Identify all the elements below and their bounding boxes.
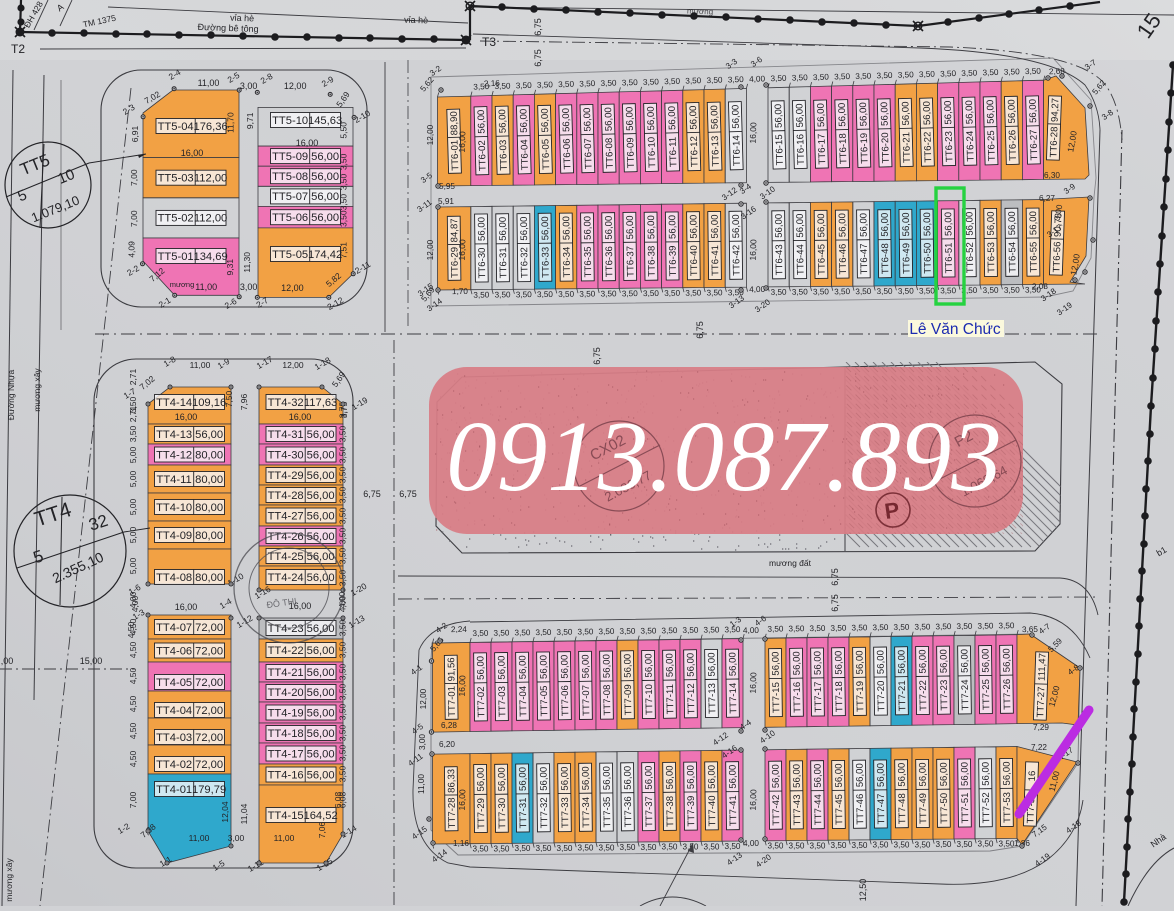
- svg-text:3,50: 3,50: [789, 842, 805, 851]
- svg-text:TT6-16: TT6-16: [795, 134, 807, 165]
- svg-text:56,00: 56,00: [622, 654, 633, 678]
- svg-text:6,91: 6,91: [130, 125, 140, 142]
- svg-text:56,00: 56,00: [816, 103, 828, 127]
- svg-text:56,00: 56,00: [311, 191, 339, 203]
- svg-text:3,50: 3,50: [707, 288, 724, 297]
- svg-text:TT7-45: TT7-45: [834, 794, 845, 825]
- svg-text:TT6-53: TT6-53: [986, 242, 997, 273]
- svg-text:TT5-07: TT5-07: [272, 191, 308, 203]
- svg-text:TT4-14: TT4-14: [156, 397, 192, 409]
- svg-text:TT4-27: TT4-27: [268, 510, 304, 522]
- svg-text:,00: ,00: [1, 656, 14, 666]
- svg-text:3,50: 3,50: [338, 466, 348, 483]
- svg-text:56,00: 56,00: [981, 762, 992, 786]
- svg-text:11,00: 11,00: [189, 833, 210, 843]
- svg-text:56,00: 56,00: [644, 766, 655, 790]
- svg-text:TT6-13: TT6-13: [710, 136, 722, 167]
- svg-text:TT7-12: TT7-12: [686, 683, 697, 714]
- svg-text:56,00: 56,00: [623, 766, 634, 790]
- svg-text:3,50: 3,50: [685, 76, 702, 86]
- svg-text:3,50: 3,50: [535, 628, 552, 637]
- svg-text:3,50: 3,50: [495, 290, 512, 299]
- svg-text:16,00: 16,00: [457, 789, 468, 811]
- svg-text:TT7-30: TT7-30: [497, 798, 508, 829]
- svg-text:56,00: 56,00: [604, 216, 615, 240]
- svg-text:3,50: 3,50: [767, 624, 784, 633]
- svg-text:TT7-44: TT7-44: [813, 794, 824, 826]
- svg-text:56,00: 56,00: [518, 767, 529, 791]
- svg-text:5,00: 5,00: [128, 446, 138, 463]
- svg-text:TT6-35: TT6-35: [583, 246, 594, 277]
- svg-text:TT7-29: TT7-29: [476, 798, 487, 829]
- svg-text:112,00: 112,00: [194, 213, 227, 225]
- svg-text:TT4-09: TT4-09: [156, 530, 192, 542]
- svg-text:7,50: 7,50: [224, 390, 234, 407]
- svg-text:56,00: 56,00: [307, 490, 335, 502]
- svg-text:TT6-27: TT6-27: [1028, 129, 1040, 160]
- svg-text:TT6-36: TT6-36: [604, 246, 615, 277]
- svg-text:TT7-22: TT7-22: [918, 680, 929, 711]
- svg-text:56,00: 56,00: [901, 212, 912, 236]
- svg-text:TT7-37: TT7-37: [644, 796, 655, 827]
- svg-text:3,50: 3,50: [598, 627, 615, 636]
- svg-text:56,00: 56,00: [834, 763, 845, 787]
- svg-text:3,50: 3,50: [622, 289, 639, 298]
- svg-text:TT4-29: TT4-29: [268, 470, 304, 482]
- svg-text:3,50: 3,50: [640, 626, 657, 635]
- svg-text:56,00: 56,00: [195, 429, 223, 441]
- svg-text:TT4-11: TT4-11: [156, 474, 191, 486]
- svg-text:56,00: 56,00: [837, 103, 849, 127]
- svg-text:56,00: 56,00: [774, 214, 785, 238]
- svg-text:16,00: 16,00: [175, 412, 198, 422]
- svg-text:56,00: 56,00: [922, 101, 934, 125]
- svg-text:56,00: 56,00: [307, 572, 335, 584]
- svg-text:4,50: 4,50: [128, 722, 138, 739]
- svg-text:11,30: 11,30: [242, 252, 252, 273]
- svg-text:3,50: 3,50: [515, 844, 531, 853]
- svg-text:TT6-08: TT6-08: [604, 138, 616, 169]
- svg-text:91,56: 91,56: [446, 657, 457, 681]
- svg-text:56,00: 56,00: [476, 767, 487, 791]
- svg-text:3,50: 3,50: [813, 73, 830, 83]
- svg-text:3,50: 3,50: [998, 621, 1015, 630]
- svg-text:3,50: 3,50: [338, 507, 348, 524]
- svg-text:56,00: 56,00: [688, 215, 699, 239]
- svg-text:TT7-39: TT7-39: [686, 796, 697, 827]
- svg-text:72,00: 72,00: [195, 622, 223, 634]
- svg-text:56,00: 56,00: [812, 651, 823, 675]
- svg-text:TT4-25: TT4-25: [268, 551, 304, 563]
- svg-text:3,50: 3,50: [792, 287, 809, 296]
- svg-text:TT6-25: TT6-25: [986, 130, 998, 161]
- svg-text:72,00: 72,00: [195, 759, 223, 771]
- svg-text:56,00: 56,00: [896, 650, 907, 674]
- svg-text:3,50: 3,50: [809, 624, 826, 633]
- svg-text:TT4-06: TT4-06: [156, 645, 192, 657]
- svg-text:3,00: 3,00: [418, 734, 427, 750]
- svg-text:3,50: 3,50: [771, 288, 788, 297]
- svg-text:TT5-01: TT5-01: [158, 251, 194, 263]
- svg-text:56,00: 56,00: [917, 649, 928, 673]
- svg-text:56,00: 56,00: [538, 655, 549, 679]
- svg-text:3,50: 3,50: [919, 70, 936, 80]
- svg-text:7,00: 7,00: [129, 169, 139, 186]
- svg-text:3,50: 3,50: [977, 621, 994, 630]
- svg-text:12,00: 12,00: [426, 124, 435, 145]
- svg-text:TT4-04: TT4-04: [156, 705, 192, 717]
- svg-text:56,00: 56,00: [943, 212, 954, 236]
- svg-text:3,50: 3,50: [643, 77, 660, 87]
- svg-text:TT7-27: TT7-27: [1035, 686, 1047, 717]
- svg-text:56,00: 56,00: [795, 214, 806, 238]
- svg-text:5,50: 5,50: [338, 122, 348, 139]
- svg-text:7,00: 7,00: [129, 210, 139, 227]
- svg-text:TT4-30: TT4-30: [268, 449, 304, 461]
- svg-text:3,50: 3,50: [557, 844, 573, 853]
- svg-text:1,70: 1,70: [452, 287, 469, 296]
- svg-text:3,50: 3,50: [516, 290, 533, 299]
- svg-text:TT4-07: TT4-07: [156, 622, 192, 634]
- svg-text:TT6-56: TT6-56: [1051, 241, 1063, 272]
- svg-text:3,50: 3,50: [851, 623, 868, 632]
- svg-text:86,33: 86,33: [446, 769, 457, 793]
- svg-text:56,00: 56,00: [517, 655, 528, 679]
- svg-text:TT7-41: TT7-41: [728, 795, 739, 826]
- svg-text:mương xây: mương xây: [4, 858, 14, 902]
- svg-text:56,00: 56,00: [730, 105, 742, 129]
- svg-text:56,00: 56,00: [582, 216, 593, 240]
- svg-text:12,50: 12,50: [858, 879, 868, 902]
- svg-text:56,00: 56,00: [646, 215, 657, 239]
- svg-text:TT5-03: TT5-03: [158, 173, 194, 185]
- svg-text:3,50: 3,50: [338, 641, 348, 658]
- svg-text:56,00: 56,00: [854, 650, 865, 674]
- svg-text:16,00: 16,00: [457, 131, 468, 153]
- svg-text:56,00: 56,00: [938, 649, 949, 673]
- svg-text:3,50: 3,50: [338, 486, 348, 503]
- svg-text:56,00: 56,00: [837, 213, 848, 237]
- svg-text:3,50: 3,50: [599, 843, 615, 852]
- svg-text:TT6-03: TT6-03: [498, 140, 510, 171]
- svg-text:3,50: 3,50: [834, 287, 851, 296]
- svg-text:3,50: 3,50: [894, 841, 910, 850]
- svg-text:4,00: 4,00: [749, 285, 766, 294]
- svg-text:3,50: 3,50: [957, 840, 973, 849]
- svg-text:3,50: 3,50: [641, 843, 657, 852]
- svg-text:56,00: 56,00: [519, 217, 530, 241]
- svg-text:3,50: 3,50: [338, 683, 348, 700]
- svg-text:3,50: 3,50: [600, 78, 617, 88]
- svg-text:56,00: 56,00: [728, 765, 739, 789]
- svg-text:16,00: 16,00: [289, 412, 312, 422]
- svg-text:12,00: 12,00: [281, 283, 304, 293]
- svg-text:3,50: 3,50: [813, 287, 830, 296]
- svg-text:vỉa hè: vỉa hè: [404, 15, 428, 26]
- svg-text:TT7-23: TT7-23: [939, 680, 950, 711]
- svg-text:56,00: 56,00: [709, 105, 721, 129]
- svg-text:3,50: 3,50: [620, 843, 636, 852]
- svg-text:56,00: 56,00: [307, 510, 335, 522]
- svg-text:56,00: 56,00: [307, 707, 335, 719]
- svg-text:56,00: 56,00: [707, 765, 718, 789]
- svg-text:TT6-48: TT6-48: [880, 243, 891, 274]
- svg-text:56,00: 56,00: [1001, 648, 1012, 672]
- svg-text:TT5-09: TT5-09: [272, 151, 308, 163]
- svg-text:12,00: 12,00: [426, 239, 435, 260]
- svg-text:16,00: 16,00: [748, 789, 759, 811]
- svg-text:16,00: 16,00: [748, 122, 759, 144]
- svg-text:TT4-28: TT4-28: [268, 490, 304, 502]
- svg-text:56,00: 56,00: [561, 108, 573, 132]
- svg-text:3,50: 3,50: [643, 289, 660, 298]
- svg-text:2,08: 2,08: [1032, 282, 1049, 291]
- svg-text:3,50: 3,50: [768, 842, 784, 851]
- svg-text:3,50: 3,50: [338, 703, 348, 720]
- svg-text:4,50: 4,50: [126, 621, 136, 638]
- svg-text:3,50: 3,50: [661, 626, 678, 635]
- svg-text:3,50: 3,50: [494, 81, 511, 91]
- svg-text:3,50: 3,50: [855, 71, 872, 81]
- svg-text:TT4-17: TT4-17: [268, 748, 304, 760]
- svg-text:TT5-10: TT5-10: [272, 115, 308, 127]
- svg-text:6,75: 6,75: [363, 489, 381, 499]
- svg-text:6,75: 6,75: [533, 18, 543, 36]
- svg-text:56,00: 56,00: [624, 107, 636, 131]
- svg-text:3,50: 3,50: [682, 626, 699, 635]
- svg-text:3,50: 3,50: [473, 290, 490, 299]
- svg-text:vỉa hè: vỉa hè: [230, 13, 254, 24]
- svg-text:TT6-14: TT6-14: [731, 134, 743, 166]
- svg-text:3,50: 3,50: [128, 425, 138, 442]
- svg-text:6,75: 6,75: [533, 49, 543, 67]
- svg-text:3,50: 3,50: [1004, 67, 1021, 77]
- svg-text:56,00: 56,00: [1006, 99, 1018, 123]
- svg-text:4,00: 4,00: [743, 839, 759, 848]
- svg-text:TT7-51: TT7-51: [960, 792, 971, 823]
- svg-text:56,00: 56,00: [625, 215, 636, 239]
- svg-text:3,50: 3,50: [855, 287, 872, 296]
- svg-text:3,50: 3,50: [338, 173, 348, 190]
- svg-text:3,50: 3,50: [619, 627, 636, 636]
- svg-text:6,20: 6,20: [439, 740, 455, 749]
- svg-text:TT6-52: TT6-52: [965, 242, 976, 273]
- svg-text:5,95: 5,95: [439, 182, 455, 191]
- svg-text:7,22: 7,22: [1031, 743, 1047, 752]
- svg-text:3,50: 3,50: [770, 74, 787, 84]
- svg-text:3,50: 3,50: [556, 628, 573, 637]
- svg-text:3,50: 3,50: [852, 841, 868, 850]
- svg-text:TT7-25: TT7-25: [981, 679, 992, 710]
- svg-text:56,00: 56,00: [685, 653, 696, 677]
- svg-text:179,79: 179,79: [192, 784, 226, 796]
- svg-text:5,00: 5,00: [128, 526, 138, 543]
- svg-text:3,50: 3,50: [982, 68, 999, 78]
- svg-text:TT4-05: TT4-05: [156, 677, 192, 689]
- svg-text:3,50: 3,50: [514, 628, 531, 637]
- svg-text:56,00: 56,00: [897, 763, 908, 787]
- svg-text:TT6-11: TT6-11: [668, 137, 680, 168]
- svg-text:TT4-24: TT4-24: [268, 572, 304, 584]
- svg-text:TT6-07: TT6-07: [583, 138, 595, 169]
- svg-text:11,70: 11,70: [226, 112, 236, 133]
- svg-text:56,00: 56,00: [875, 650, 886, 674]
- svg-text:Đường bê tông: Đường bê tông: [197, 22, 258, 34]
- svg-text:TT7-47: TT7-47: [876, 793, 887, 824]
- svg-text:56,00: 56,00: [307, 748, 335, 760]
- svg-text:TT6-22: TT6-22: [922, 131, 934, 162]
- svg-text:56,00: 56,00: [791, 651, 802, 675]
- svg-text:56,00: 56,00: [307, 449, 335, 461]
- svg-text:56,00: 56,00: [497, 767, 508, 791]
- svg-text:56,00: 56,00: [773, 104, 785, 128]
- svg-text:56,00: 56,00: [311, 212, 339, 224]
- svg-text:TT6-41: TT6-41: [710, 245, 721, 276]
- svg-text:TT6-17: TT6-17: [816, 133, 828, 164]
- svg-text:80,00: 80,00: [195, 530, 223, 542]
- svg-text:TT6-54: TT6-54: [1007, 241, 1018, 273]
- svg-text:56,00: 56,00: [858, 102, 870, 126]
- svg-text:2,24: 2,24: [451, 625, 468, 634]
- svg-text:TT7-34: TT7-34: [581, 796, 592, 828]
- svg-text:3,50: 3,50: [936, 840, 952, 849]
- svg-text:TT7-46: TT7-46: [855, 794, 866, 825]
- svg-text:2,71: 2,71: [128, 368, 138, 385]
- svg-text:112,00: 112,00: [194, 173, 227, 185]
- svg-text:6,28: 6,28: [441, 721, 457, 730]
- svg-text:3,50: 3,50: [914, 622, 931, 631]
- svg-text:56,00: 56,00: [900, 101, 912, 125]
- svg-text:176,36: 176,36: [193, 121, 227, 133]
- svg-text:56,00: 56,00: [475, 656, 486, 680]
- svg-text:3,50: 3,50: [338, 663, 348, 680]
- svg-text:7,96: 7,96: [239, 393, 249, 410]
- svg-text:3,00: 3,00: [240, 282, 258, 292]
- svg-text:3,50: 3,50: [662, 843, 678, 852]
- svg-text:56,00: 56,00: [559, 655, 570, 679]
- svg-text:3,50: 3,50: [1025, 67, 1042, 77]
- svg-text:12,04: 12,04: [220, 801, 230, 823]
- svg-text:TT7-11: TT7-11: [665, 684, 676, 714]
- svg-text:TT6-47: TT6-47: [859, 243, 870, 274]
- svg-text:5,00: 5,00: [128, 557, 138, 574]
- svg-text:72,00: 72,00: [195, 705, 223, 717]
- svg-text:TT6-46: TT6-46: [838, 244, 849, 275]
- svg-text:TT7-02: TT7-02: [476, 686, 487, 717]
- svg-text:3,65: 3,65: [1022, 625, 1039, 634]
- svg-text:TT7-15: TT7-15: [771, 682, 782, 713]
- svg-text:7,29: 7,29: [1033, 723, 1049, 732]
- svg-text:3,50: 3,50: [579, 79, 596, 89]
- svg-text:TT6-06: TT6-06: [562, 138, 574, 169]
- svg-text:TT4-10: TT4-10: [156, 502, 192, 514]
- svg-text:TT7-10: TT7-10: [644, 684, 655, 715]
- svg-text:174,42: 174,42: [308, 249, 342, 261]
- svg-text:TT4-08: TT4-08: [156, 572, 192, 584]
- svg-text:94,27: 94,27: [1050, 98, 1062, 122]
- svg-text:11,04: 11,04: [239, 803, 249, 824]
- svg-text:3,50: 3,50: [579, 289, 596, 298]
- svg-text:4,50: 4,50: [128, 750, 138, 767]
- svg-text:56,00: 56,00: [665, 765, 676, 789]
- svg-text:TT7-09: TT7-09: [623, 684, 634, 715]
- svg-text:1,16: 1,16: [453, 839, 469, 848]
- svg-text:56,00: 56,00: [664, 653, 675, 677]
- svg-text:TT7-14: TT7-14: [728, 682, 739, 714]
- svg-text:TT6-28: TT6-28: [1048, 126, 1060, 157]
- svg-text:TT6-18: TT6-18: [838, 133, 850, 164]
- svg-text:3,50: 3,50: [893, 623, 910, 632]
- svg-text:3,50: 3,50: [728, 75, 745, 85]
- svg-text:TT7-38: TT7-38: [665, 796, 676, 827]
- svg-text:Đường Nhựa: Đường Nhựa: [6, 369, 16, 420]
- svg-text:3,50: 3,50: [703, 625, 720, 634]
- svg-text:3,50: 3,50: [472, 629, 489, 638]
- svg-text:72,00: 72,00: [195, 677, 223, 689]
- svg-text:3,50: 3,50: [792, 73, 809, 83]
- svg-text:TT7-18: TT7-18: [834, 681, 845, 712]
- svg-text:3,00: 3,00: [240, 81, 258, 91]
- svg-text:5,91: 5,91: [438, 197, 454, 206]
- svg-text:TT7-05: TT7-05: [539, 685, 550, 716]
- svg-text:134,69: 134,69: [193, 251, 227, 263]
- svg-text:111,47: 111,47: [1037, 653, 1049, 681]
- svg-text:TT6-10: TT6-10: [646, 137, 658, 168]
- svg-text:TT7-17: TT7-17: [813, 681, 824, 712]
- svg-text:TT6-32: TT6-32: [519, 247, 530, 278]
- svg-text:5,00: 5,00: [128, 470, 138, 487]
- svg-text:TT6-49: TT6-49: [901, 243, 912, 274]
- svg-text:56,00: 56,00: [307, 667, 335, 679]
- svg-text:56,00: 56,00: [307, 728, 335, 740]
- svg-text:TT7-31: TT7-31: [518, 797, 529, 828]
- svg-text:56,00: 56,00: [667, 106, 679, 130]
- svg-text:56,00: 56,00: [727, 652, 738, 676]
- svg-text:12,00: 12,00: [284, 81, 307, 91]
- svg-text:3,50: 3,50: [338, 425, 348, 442]
- svg-text:56,00: 56,00: [813, 764, 824, 788]
- svg-text:4,50: 4,50: [128, 695, 138, 712]
- svg-text:56,00: 56,00: [855, 763, 866, 787]
- svg-text:56,00: 56,00: [964, 100, 976, 124]
- svg-text:56,00: 56,00: [986, 211, 997, 235]
- svg-text:56,00: 56,00: [686, 765, 697, 789]
- svg-text:16,00: 16,00: [748, 239, 759, 261]
- svg-text:TT7-13: TT7-13: [707, 683, 718, 714]
- svg-text:56,00: 56,00: [498, 217, 509, 241]
- svg-text:16,00: 16,00: [457, 675, 468, 697]
- svg-text:TT4-22: TT4-22: [268, 645, 304, 657]
- svg-text:TT6-04: TT6-04: [519, 139, 531, 171]
- svg-text:TT6-50: TT6-50: [922, 243, 933, 274]
- svg-text:56,00: 56,00: [307, 429, 335, 441]
- svg-text:7,06: 7,06: [317, 821, 327, 838]
- svg-text:3,50: 3,50: [558, 80, 575, 90]
- svg-text:11,00: 11,00: [274, 833, 295, 843]
- svg-text:6,75: 6,75: [695, 321, 705, 339]
- svg-text:3,50: 3,50: [536, 844, 552, 853]
- svg-text:TT7-53: TT7-53: [1002, 792, 1013, 823]
- svg-text:3,50: 3,50: [940, 69, 957, 79]
- svg-text:3,50: 3,50: [876, 71, 893, 81]
- svg-text:TT6-38: TT6-38: [646, 246, 657, 277]
- svg-text:TT6-31: TT6-31: [498, 247, 509, 278]
- svg-text:TT4-31: TT4-31: [268, 429, 304, 441]
- svg-text:11,00: 11,00: [417, 774, 426, 794]
- svg-text:TT7-26: TT7-26: [1002, 679, 1013, 710]
- svg-text:3,50: 3,50: [873, 841, 889, 850]
- svg-text:3,50: 3,50: [537, 290, 554, 299]
